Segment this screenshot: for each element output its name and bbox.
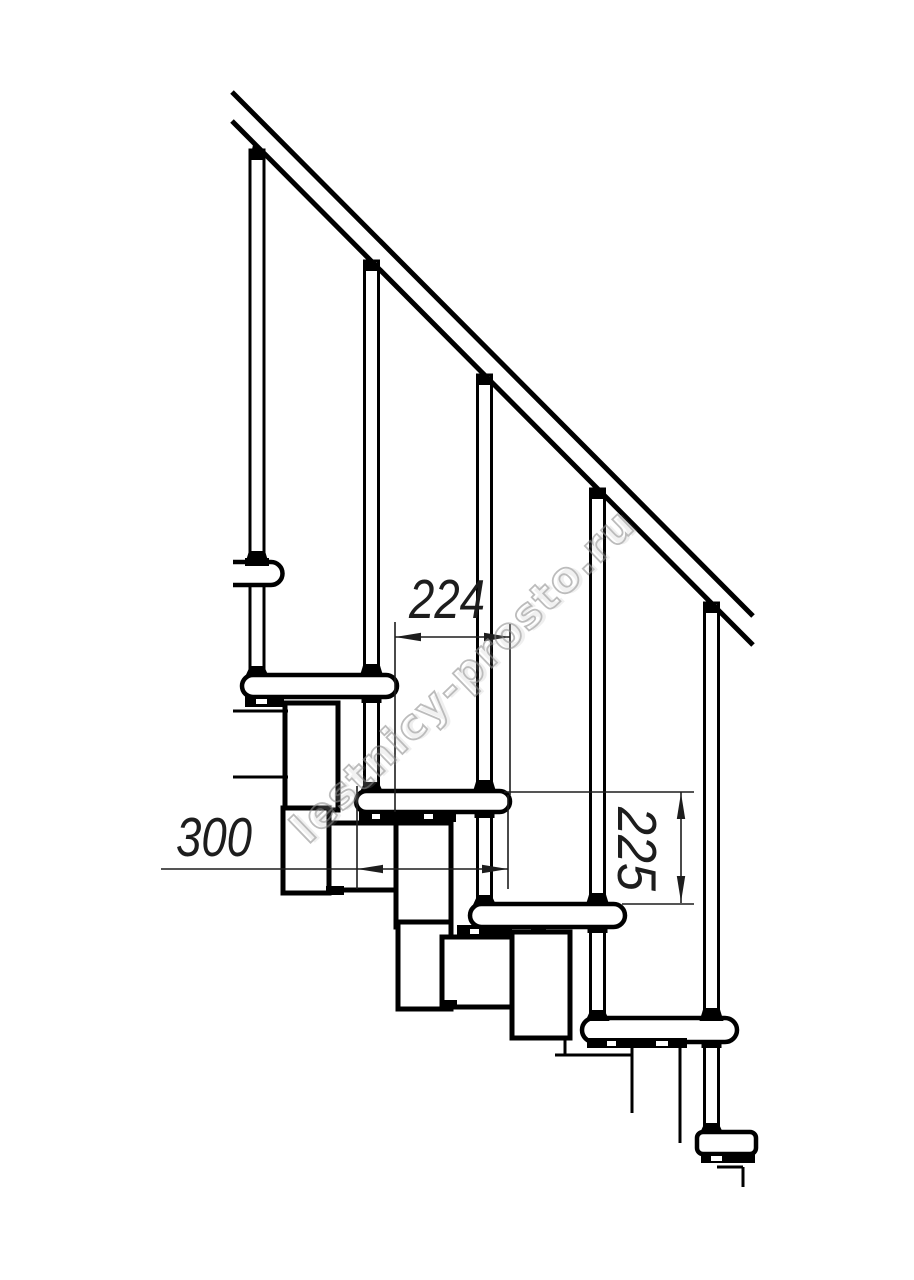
stringer-module (396, 823, 451, 927)
arrow-right (484, 633, 510, 641)
baluster-clamp (586, 893, 610, 906)
arrow-right (482, 865, 508, 873)
connector-notch (372, 814, 380, 819)
tread-connector (701, 1152, 755, 1163)
baluster-nut (475, 811, 495, 818)
connector-notch (470, 929, 479, 934)
baluster-nut (702, 1041, 722, 1048)
baluster (591, 489, 605, 1018)
baluster (365, 261, 379, 792)
baluster-nut (588, 926, 608, 933)
baluster-clamp (700, 1008, 724, 1021)
tread (470, 904, 625, 927)
arrow-down (677, 876, 685, 902)
baluster-clamp (473, 780, 497, 793)
connector-notch (607, 1041, 616, 1046)
connector-notch (424, 814, 433, 819)
baluster-nut (362, 696, 382, 703)
staircase-side-elevation: 224 300 225 (0, 0, 914, 1280)
connector-notch (656, 1041, 668, 1046)
dimension-tread-depth: 300 (176, 806, 252, 868)
stringer-module (285, 703, 338, 810)
module-joint (326, 886, 344, 895)
baluster (705, 603, 719, 1132)
dimension-step-rise: 225 (606, 806, 668, 891)
arrow-left (395, 633, 421, 641)
dimension-step-run: 224 (408, 568, 485, 630)
baluster-clamp (360, 664, 384, 677)
baluster-clamp (245, 558, 269, 566)
staircase-technical-drawing: 224 300 225 lestnicy-prosto.ru (0, 0, 914, 1280)
connector-notch (711, 1156, 722, 1161)
stringer-module (442, 937, 518, 1007)
stringer-module (512, 932, 570, 1038)
stringer-modules (283, 703, 570, 1038)
tread-connector (587, 1038, 687, 1048)
stringer-module (329, 823, 403, 890)
stringer-module (283, 808, 329, 893)
arrow-up (677, 793, 685, 819)
tread (242, 675, 397, 697)
tread (356, 791, 510, 812)
baluster (250, 150, 264, 676)
tread (697, 1132, 756, 1154)
connector-notch (256, 699, 267, 704)
module-joint (440, 1000, 457, 1009)
